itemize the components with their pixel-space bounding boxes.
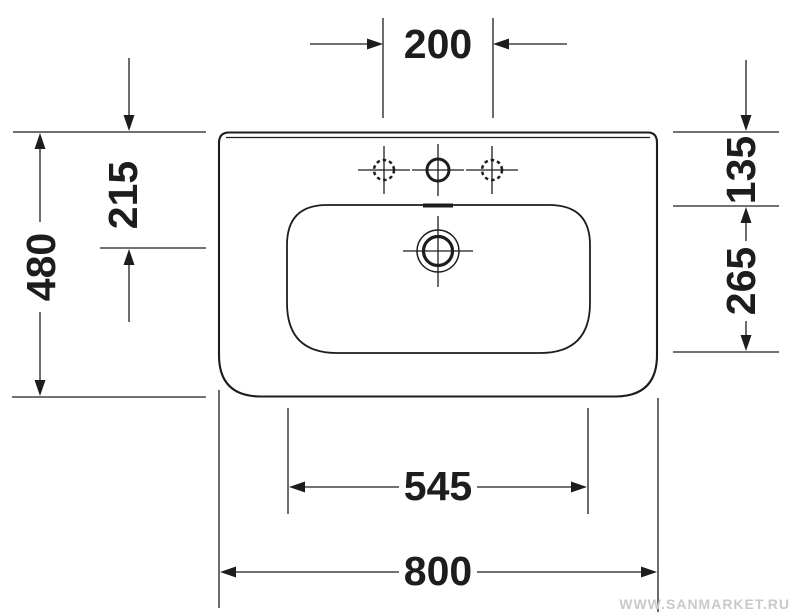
tap-hole-right	[466, 146, 518, 194]
dim-label-overall-width: 800	[404, 548, 472, 594]
arrowhead-right	[571, 482, 587, 493]
arrowhead-left	[220, 567, 236, 578]
arrowhead-left	[493, 39, 509, 50]
drain-group	[403, 216, 473, 287]
washbasin-technical-drawing: 200 480 215 135 265	[0, 0, 792, 616]
dim-right-chain: 135 265	[673, 60, 779, 352]
tap-hole-center	[412, 144, 464, 196]
watermark: WWW.SANMARKET.RU	[619, 596, 790, 612]
tap-hole-left	[358, 146, 410, 194]
arrowhead-up	[35, 133, 46, 149]
dim-label-bowl-depth: 265	[718, 247, 764, 315]
technical-drawing-canvas: 200 480 215 135 265	[0, 0, 792, 616]
dim-bowl-width: 545	[288, 408, 588, 514]
dim-label-tap-spacing: 200	[404, 21, 472, 67]
dim-tap-spacing: 200	[310, 18, 567, 118]
arrowhead-right	[367, 39, 383, 50]
arrowhead-down	[124, 115, 135, 131]
tap-holes-group	[358, 144, 518, 196]
arrowhead-down	[35, 380, 46, 396]
arrowhead-up-mid	[741, 207, 752, 223]
dim-label-rear-to-drain: 215	[100, 161, 146, 229]
dim-rear-to-drain: 215	[100, 58, 206, 322]
arrowhead-down-top	[741, 115, 752, 131]
dim-label-rear-to-bowl: 135	[718, 136, 764, 204]
arrowhead-down-bottom	[741, 335, 752, 351]
arrowhead-up	[124, 249, 135, 265]
arrowhead-right	[641, 567, 657, 578]
dim-label-overall-depth: 480	[18, 233, 64, 301]
dim-label-bowl-width: 545	[404, 463, 472, 509]
arrowhead-left	[289, 482, 305, 493]
